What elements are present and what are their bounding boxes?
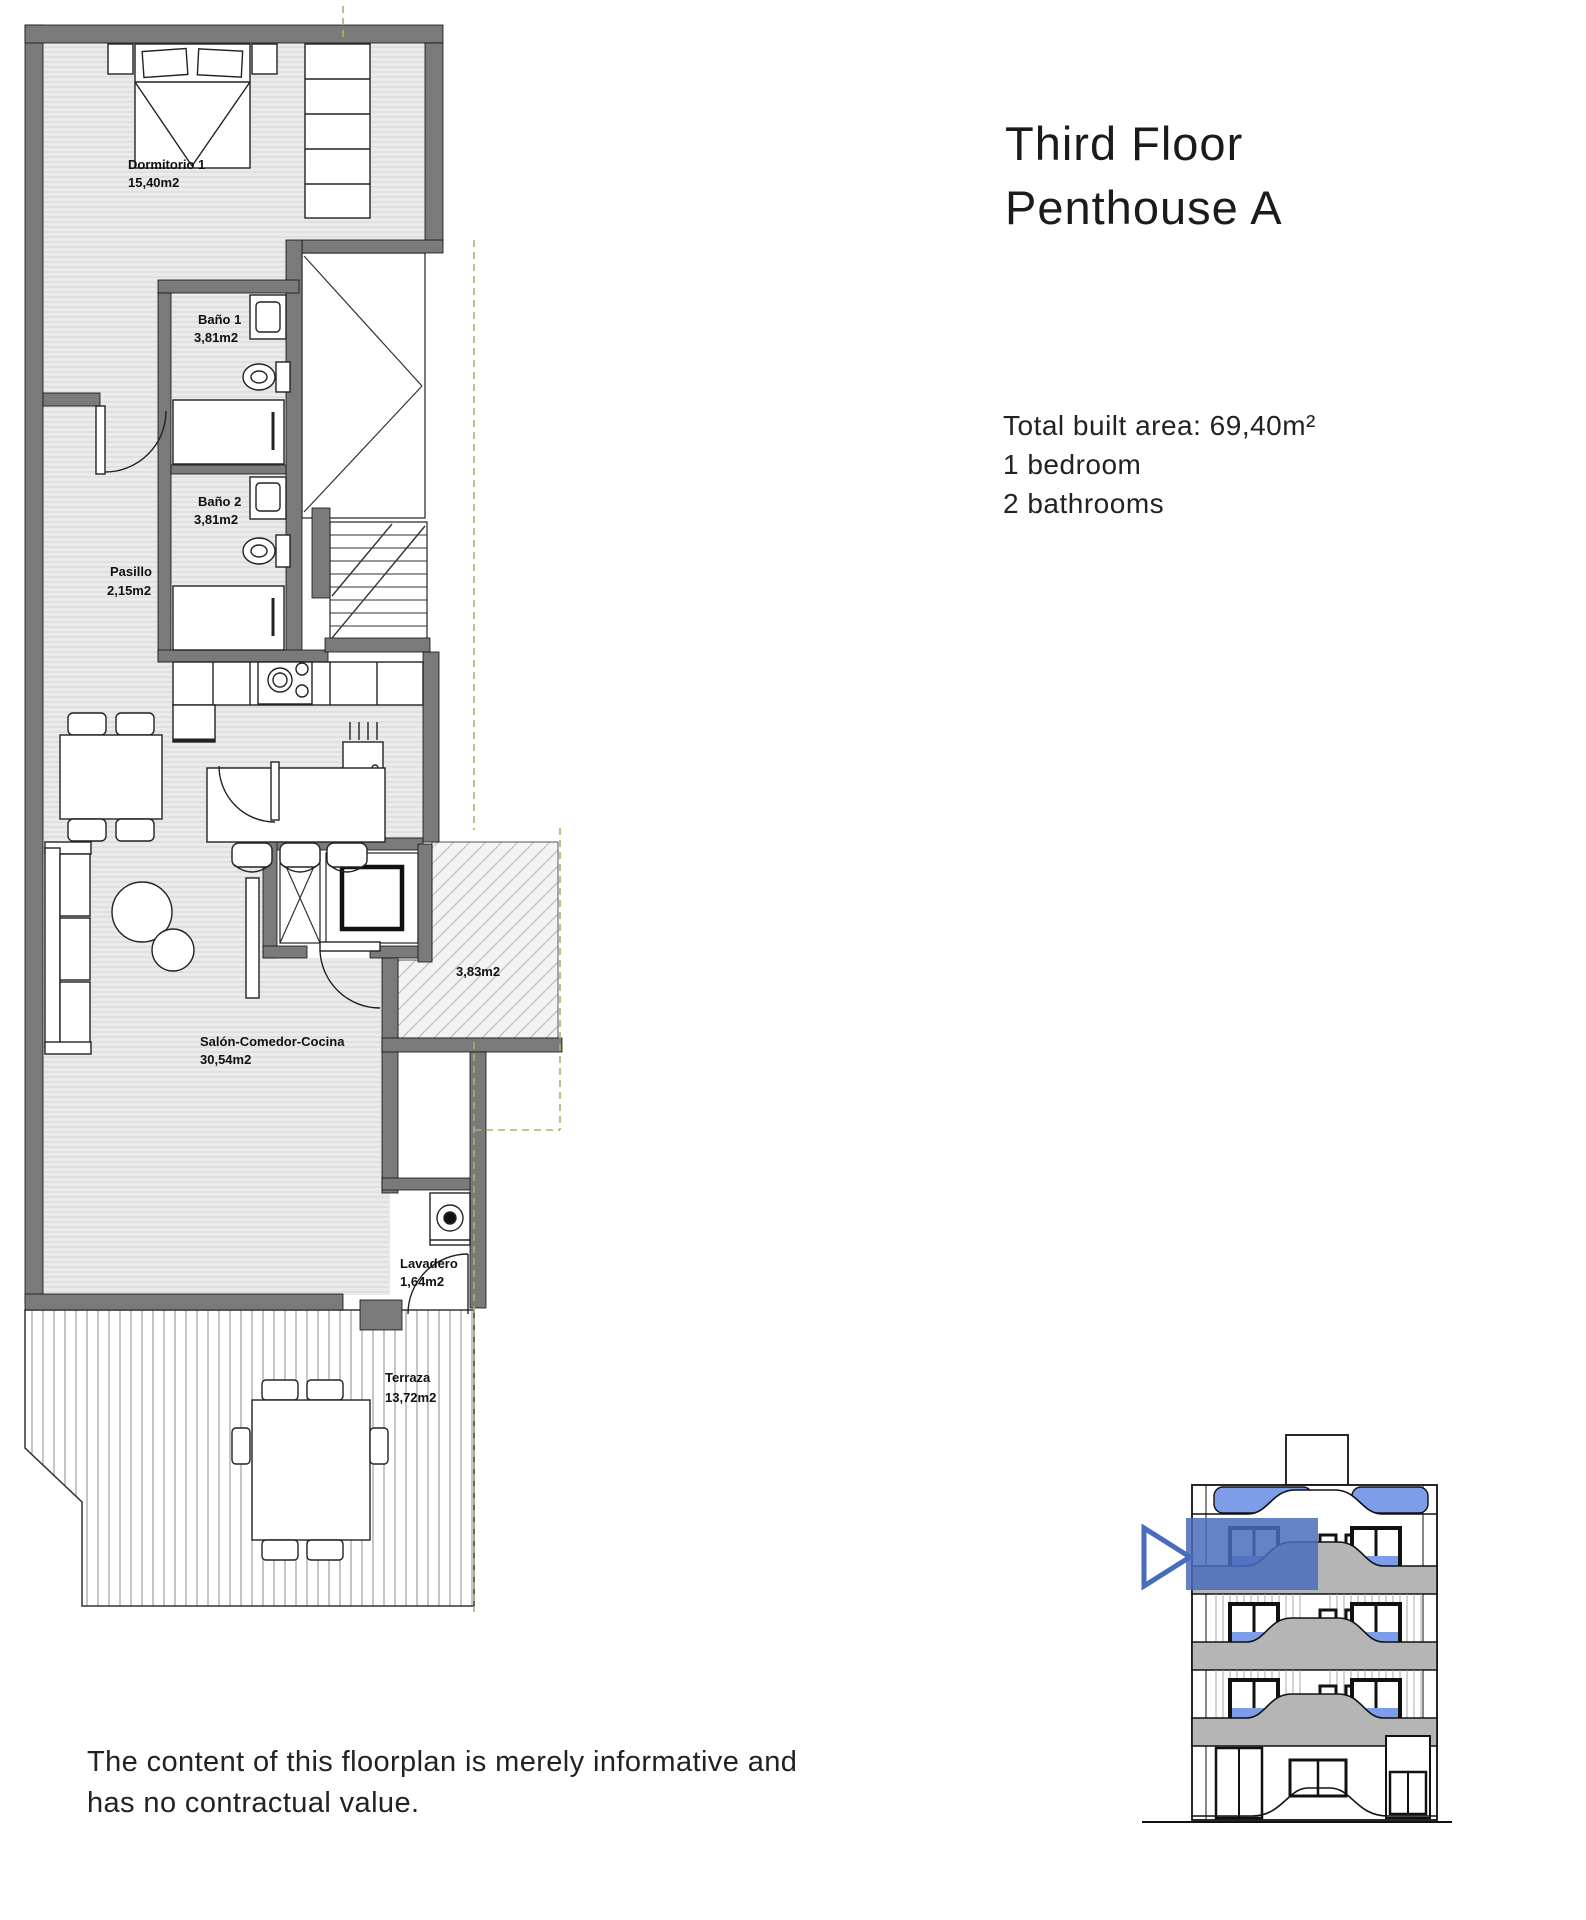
label-landing-area: 3,83m2 (456, 964, 500, 979)
building-elevation-icon (1100, 1400, 1480, 1850)
label-dormitorio-name: Dormitorio 1 (128, 157, 205, 172)
sofa-icon (45, 842, 91, 1054)
unit-highlight (1186, 1518, 1318, 1590)
label-bano2-name: Baño 2 (198, 494, 241, 509)
bedrooms-text: 1 bedroom (1003, 445, 1316, 484)
stairs (330, 522, 427, 640)
stair-void (302, 253, 425, 518)
label-bano1-area: 3,81m2 (194, 330, 238, 345)
kitchen-island (207, 768, 385, 872)
label-bano1-name: Baño 1 (198, 312, 241, 327)
label-salon-name: Salón-Comedor-Cocina (200, 1034, 345, 1049)
label-lavadero-name: Lavadero (400, 1256, 458, 1271)
label-terraza-area: 13,72m2 (385, 1390, 436, 1405)
floorplan-drawing: Dormitorio 1 15,40m2 Baño 1 3,81m2 Baño … (0, 0, 900, 1720)
floorplan-page: Dormitorio 1 15,40m2 Baño 1 3,81m2 Baño … (0, 0, 1586, 1920)
top-parapet (1192, 1487, 1437, 1514)
label-salon-area: 30,54m2 (200, 1052, 251, 1067)
label-terraza-name: Terraza (385, 1370, 431, 1385)
washing-machine-icon (430, 1193, 470, 1245)
title-line-1: Third Floor (1005, 112, 1283, 176)
disclaimer-line-1: The content of this floorplan is merely … (87, 1742, 797, 1783)
view-marker-icon (1144, 1528, 1190, 1586)
bathrooms-text: 2 bathrooms (1003, 484, 1316, 523)
title-line-2: Penthouse A (1005, 176, 1283, 240)
label-pasillo-name: Pasillo (110, 564, 152, 579)
total-area-text: Total built area: 69,40m² (1003, 406, 1316, 445)
wardrobe-icon (305, 44, 370, 218)
label-pasillo-area: 2,15m2 (107, 583, 151, 598)
disclaimer: The content of this floorplan is merely … (87, 1742, 797, 1824)
disclaimer-line-2: has no contractual value. (87, 1783, 797, 1824)
coffee-table-small-icon (152, 929, 194, 971)
label-dormitorio-area: 15,40m2 (128, 175, 179, 190)
label-lavadero-area: 1,64m2 (400, 1274, 444, 1289)
terrace-table-icon (232, 1380, 388, 1560)
label-bano2-area: 3,81m2 (194, 512, 238, 527)
unit-summary: Total built area: 69,40m² 1 bedroom 2 ba… (1003, 406, 1316, 523)
rooftop-box (1286, 1435, 1348, 1485)
tv-bench-icon (246, 878, 259, 998)
page-title: Third Floor Penthouse A (1005, 112, 1283, 240)
